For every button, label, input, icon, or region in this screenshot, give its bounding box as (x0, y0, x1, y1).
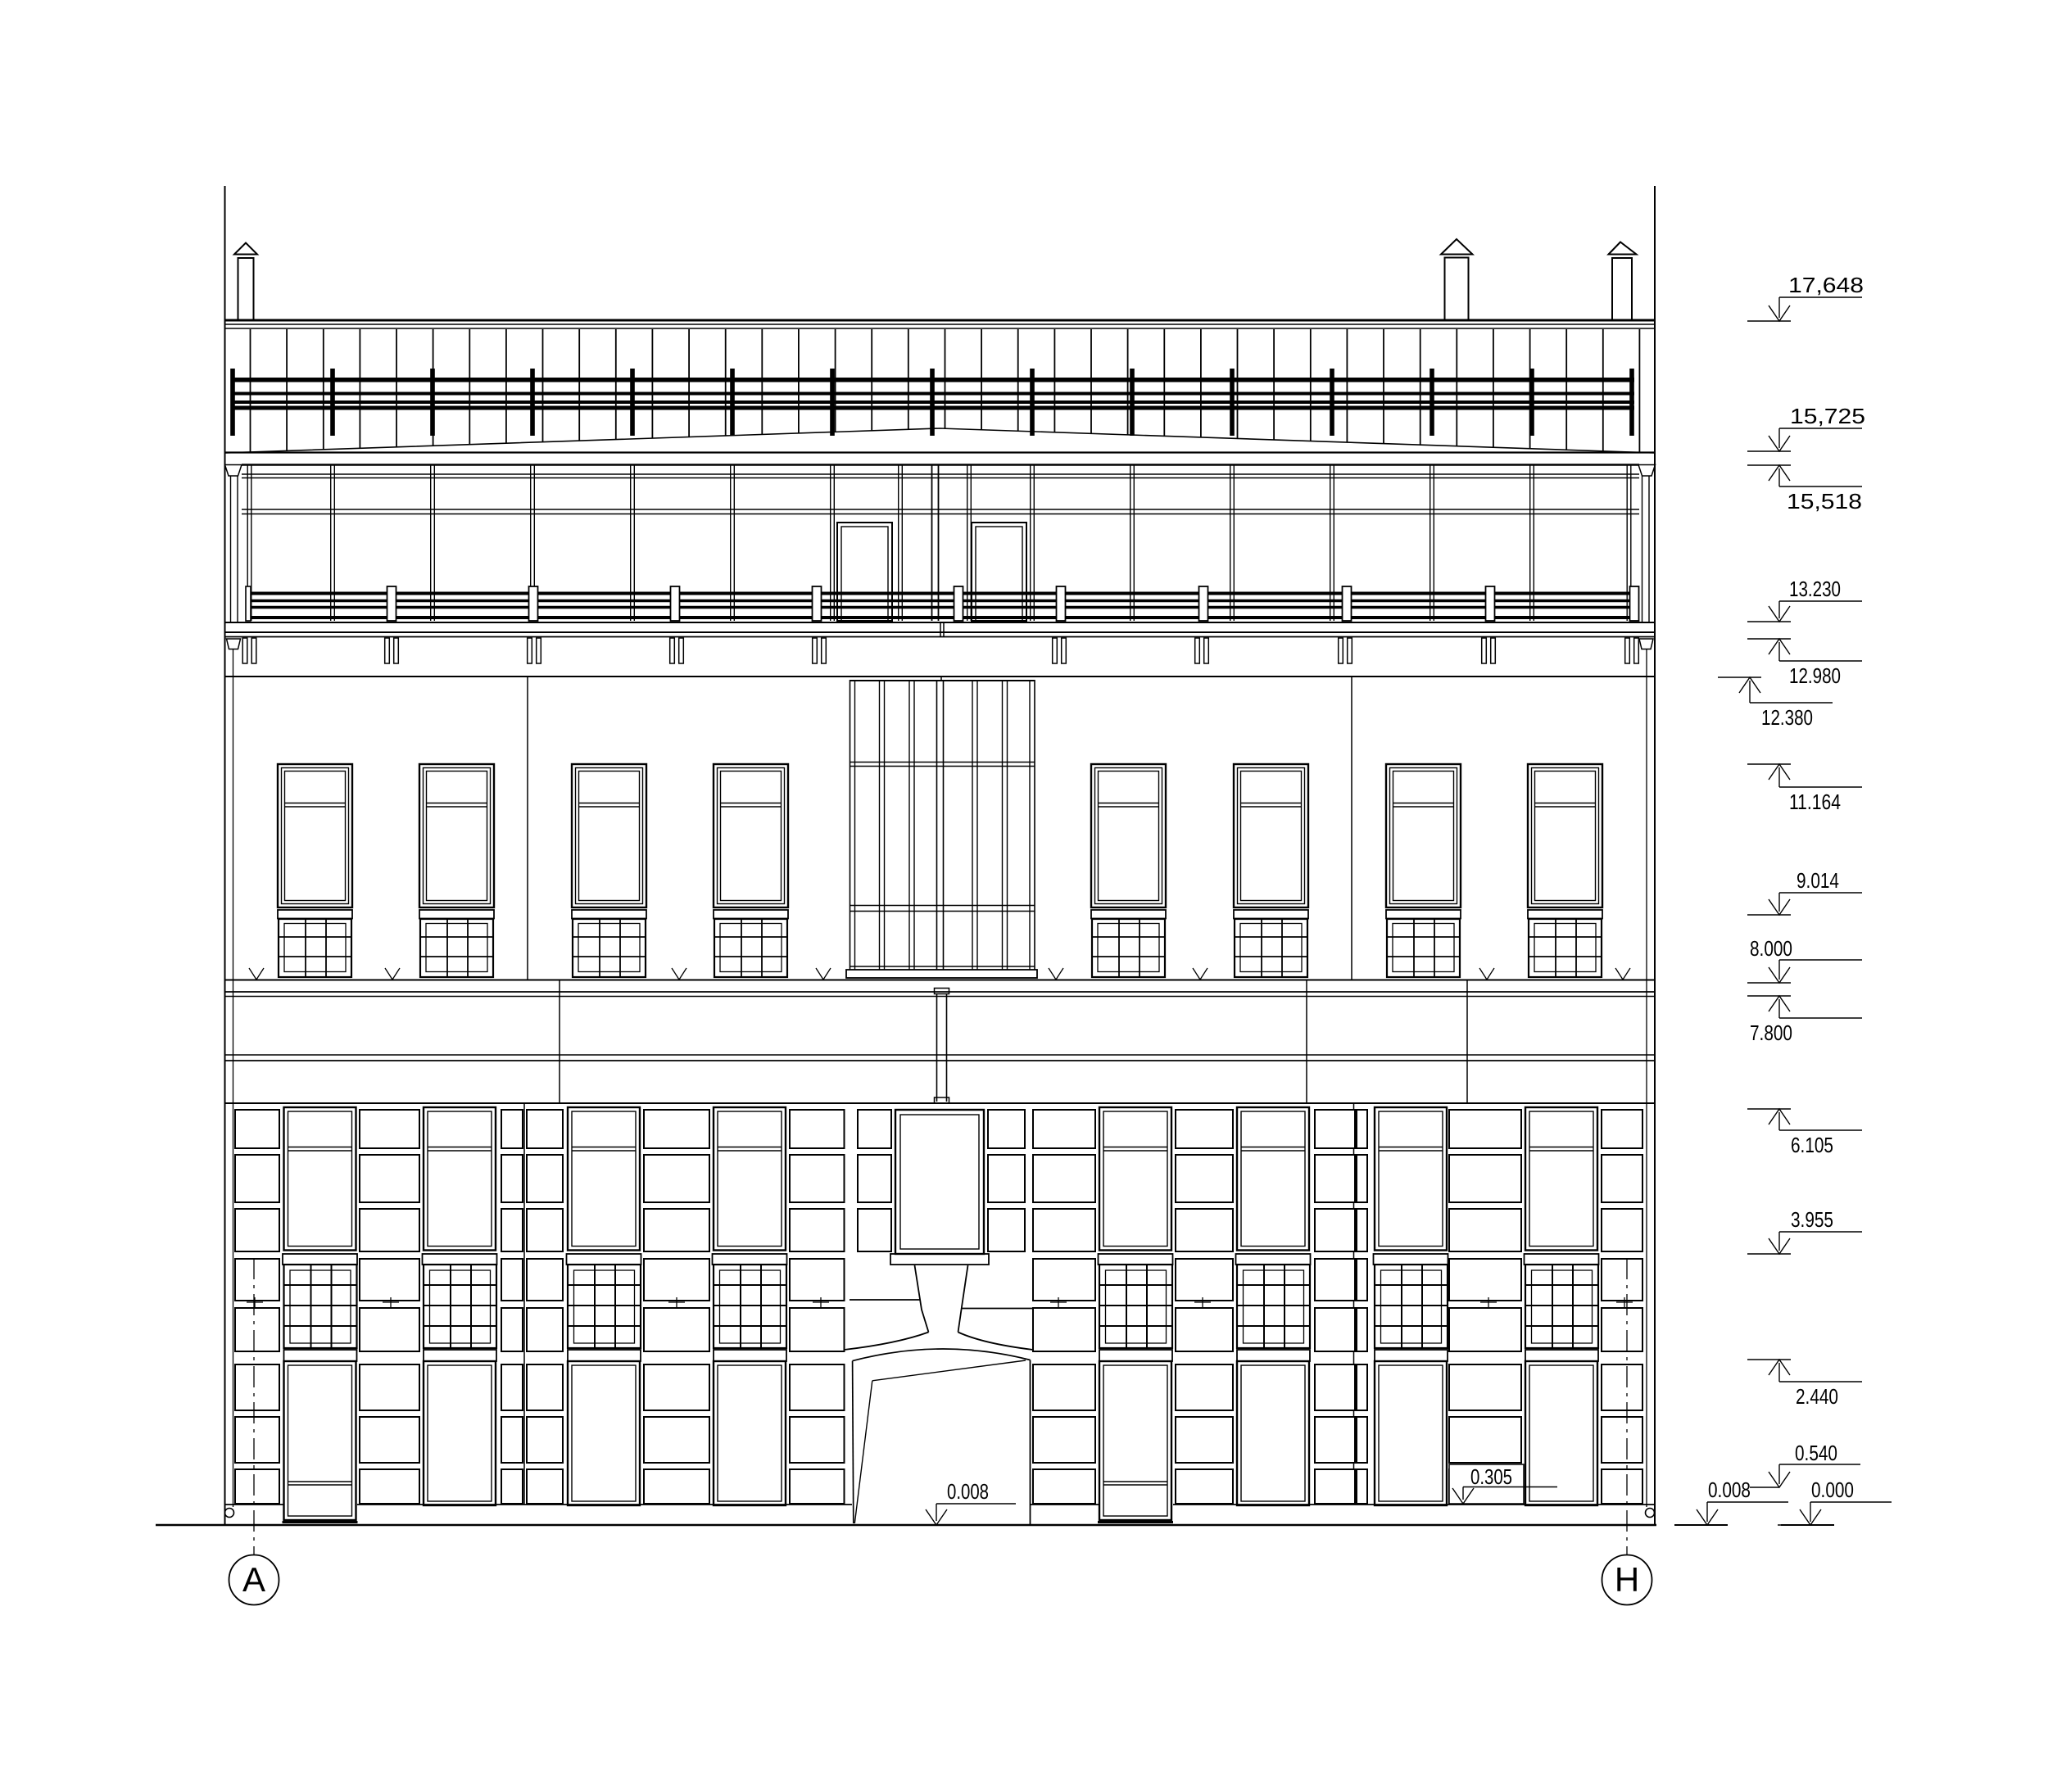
svg-text:0.008: 0.008 (1708, 1477, 1751, 1502)
svg-text:0.540: 0.540 (1795, 1441, 1837, 1465)
svg-text:0.008: 0.008 (947, 1479, 989, 1504)
svg-text:12.980: 12.980 (1789, 663, 1841, 688)
svg-text:17,648: 17,648 (1788, 273, 1864, 297)
svg-text:6.105: 6.105 (1791, 1133, 1833, 1157)
svg-text:H: H (1615, 1560, 1639, 1599)
svg-text:A: A (242, 1560, 265, 1599)
svg-text:15,725: 15,725 (1790, 404, 1865, 428)
svg-text:9.014: 9.014 (1797, 868, 1839, 893)
svg-text:0.000: 0.000 (1811, 1477, 1854, 1502)
svg-text:0.305: 0.305 (1470, 1464, 1512, 1489)
svg-text:3.955: 3.955 (1791, 1207, 1833, 1232)
svg-text:7.800: 7.800 (1750, 1020, 1792, 1045)
svg-text:13.230: 13.230 (1789, 577, 1841, 601)
svg-text:2.440: 2.440 (1796, 1384, 1838, 1409)
svg-text:11.164: 11.164 (1789, 790, 1841, 814)
svg-text:12.380: 12.380 (1761, 705, 1813, 730)
svg-text:15,518: 15,518 (1787, 489, 1862, 514)
svg-text:8.000: 8.000 (1750, 936, 1792, 961)
